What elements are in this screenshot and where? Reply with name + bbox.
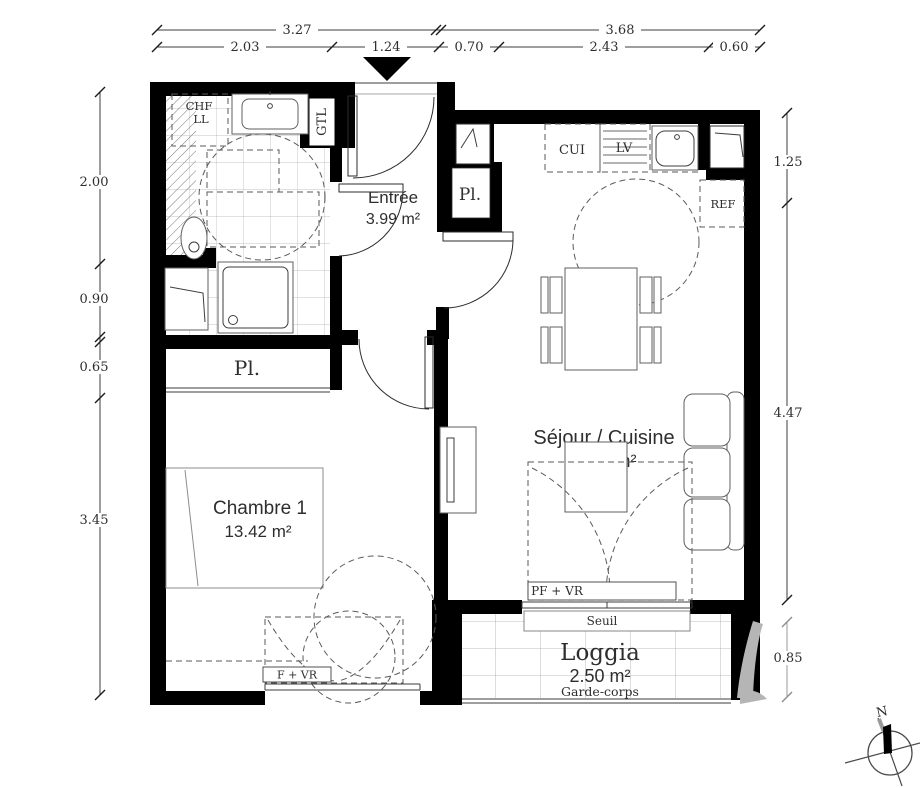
- coffee-table: [565, 442, 627, 512]
- window-clearance-circle: [303, 611, 395, 703]
- entree-area: 3.99 m²: [366, 211, 421, 228]
- gtl-label: GTL: [315, 108, 330, 136]
- entree-name: Entrée: [368, 188, 418, 207]
- kitchen-label: CUI: [559, 143, 585, 158]
- dim-top-lower-5: 0.60: [720, 40, 749, 55]
- entrance-door-swing: [353, 97, 434, 178]
- washer-label: LL: [193, 112, 209, 126]
- entree: Entrée 3.99 m² Pl.: [348, 96, 513, 308]
- fridge-label: REF: [710, 197, 735, 211]
- dim-top-lower-1: 2.03: [231, 40, 260, 55]
- dim-top-lower-2: 1.24: [372, 40, 401, 55]
- sejour-door-leaf: [443, 232, 513, 241]
- chambre-door-swing: [359, 339, 429, 409]
- dim-right-3: 0.85: [774, 651, 803, 666]
- dim-top-lower-4: 2.43: [590, 40, 619, 55]
- dimension-chain-left: 2.00 0.90 0.65 3.45: [72, 87, 116, 700]
- tv-console: [440, 427, 476, 513]
- sofa: [684, 392, 744, 550]
- dimension-chain-right: 1.25 4.47 0.85: [766, 108, 810, 702]
- loggia-name: Loggia: [560, 640, 640, 666]
- dim-top-lower-3: 0.70: [455, 40, 484, 55]
- dim-top-upper-2: 3.68: [606, 23, 635, 38]
- entrance-arrow-icon: [363, 57, 411, 81]
- duct-box-bathroom: [165, 268, 208, 330]
- toilet: [181, 217, 207, 259]
- floor-plan-svg: 3.27 3.68 2.03 1.24 0.70 2.43 0.60: [0, 0, 920, 788]
- north-label: N: [875, 704, 889, 721]
- chambre-area: 13.42 m²: [224, 522, 291, 541]
- compass-north-icon: N: [845, 704, 920, 786]
- threshold-label: Seuil: [587, 614, 618, 628]
- pf-vr-label: PF + VR: [531, 584, 584, 598]
- water-heater-label: CHF: [186, 99, 213, 113]
- sejour-door-swing: [444, 239, 513, 308]
- dimension-chain-top: 3.27 3.68 2.03 1.24 0.70 2.43 0.60: [152, 23, 765, 81]
- guardrail-label: Garde-corps: [561, 684, 639, 699]
- dim-left-2: 0.90: [80, 292, 109, 307]
- chambre-name: Chambre 1: [213, 498, 307, 519]
- dishwasher-label: LV: [616, 141, 633, 156]
- dim-right-1: 1.25: [774, 155, 803, 170]
- entree-closet-label: Pl.: [459, 185, 481, 205]
- loggia-area: 2.50 m²: [569, 666, 630, 686]
- duct-box-kitchen: [710, 126, 744, 168]
- dim-left-3: 0.65: [80, 360, 109, 375]
- f-vr-label: F + VR: [277, 669, 318, 682]
- dim-left-4: 3.45: [80, 513, 109, 528]
- dim-left-1: 2.00: [80, 175, 109, 190]
- dim-right-2: 4.47: [774, 406, 803, 421]
- chambre-closet-label: Pl.: [234, 356, 260, 380]
- chambre: Pl. Chambre 1 13.42 m² F + VR: [166, 337, 436, 703]
- dim-top-upper-1: 3.27: [283, 23, 312, 38]
- chambre-door-leaf: [425, 337, 433, 408]
- dining-table: [565, 268, 637, 370]
